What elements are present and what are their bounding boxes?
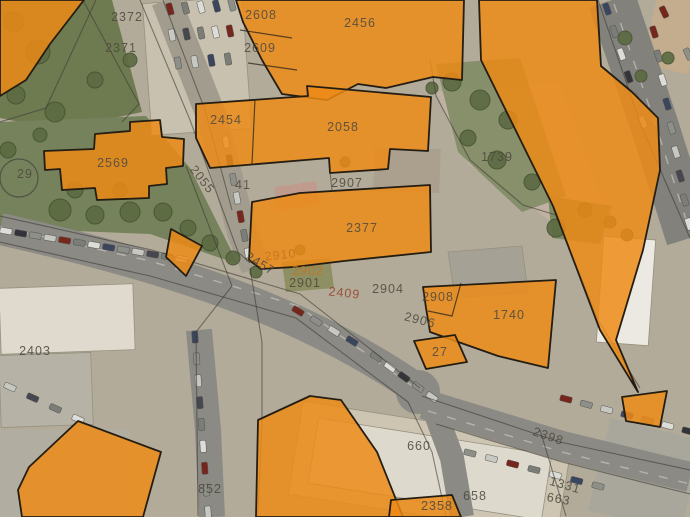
parcel-label-658: 658: [463, 489, 487, 503]
tree: [0, 142, 16, 158]
parked-car: [196, 396, 203, 408]
tree: [33, 128, 47, 142]
parked-car: [205, 506, 212, 517]
parcel-label-2901: 2901: [289, 276, 321, 290]
parcel-label-660: 660: [407, 439, 431, 453]
tree: [86, 206, 104, 224]
parcel-right-small[interactable]: [622, 391, 667, 427]
parked-car: [192, 331, 199, 343]
parcel-label-2403: 2403: [19, 344, 51, 358]
tree: [123, 53, 137, 67]
tree: [45, 102, 65, 122]
parked-car: [200, 440, 207, 452]
parcel-label-2908: 2908: [422, 290, 454, 304]
tree: [426, 82, 438, 94]
tree: [120, 202, 140, 222]
parcel-label-2058: 2058: [327, 120, 359, 134]
parcel-label-2377: 2377: [346, 221, 378, 235]
parcel-label-27: 27: [432, 345, 448, 359]
parcel-label-2608: 2608: [245, 8, 277, 22]
parcel-label-2372: 2372: [111, 10, 143, 24]
parcel-label-2904: 2904: [372, 282, 404, 296]
parked-car: [201, 462, 208, 474]
parcel-label-2358: 2358: [421, 499, 453, 513]
parcel-label-2456: 2456: [344, 16, 376, 30]
parcel-label-2609: 2609: [244, 41, 276, 55]
parcel-label-1740: 1740: [493, 308, 525, 322]
parcel-label-2907: 2907: [331, 176, 363, 190]
tree: [460, 130, 476, 146]
cadastral-map-canvas[interactable]: 2372237126082609245624542058173925692920…: [0, 0, 690, 517]
parcel-label-29: 29: [17, 167, 33, 181]
map-viewport[interactable]: 2372237126082609245624542058173925692920…: [0, 0, 690, 517]
parcel-label-2454: 2454: [210, 113, 242, 127]
tree: [635, 70, 647, 82]
tree: [154, 203, 172, 221]
tree: [226, 251, 240, 265]
parcel-label-852: 852: [198, 482, 222, 496]
parcel-label-1739: 1739: [481, 150, 513, 164]
parked-car: [195, 375, 202, 387]
parcel-label-2569: 2569: [97, 156, 129, 170]
parcel-label-2371: 2371: [105, 41, 137, 55]
tree: [49, 199, 71, 221]
tree: [618, 31, 632, 45]
tree: [87, 72, 103, 88]
tree: [662, 52, 674, 64]
tree: [180, 220, 196, 236]
parcel-label-41: 41: [235, 178, 251, 192]
tree: [470, 90, 490, 110]
parked-car: [198, 418, 205, 430]
